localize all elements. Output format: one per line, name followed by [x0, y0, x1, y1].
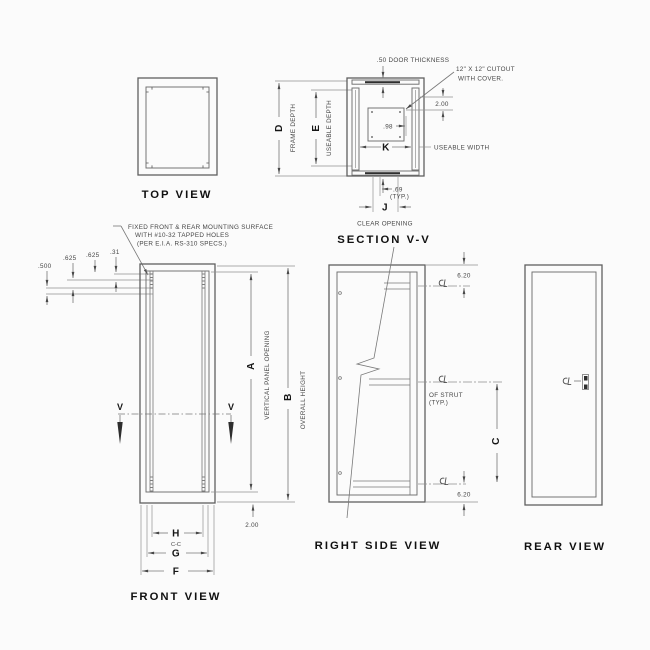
rear-outer-frame — [525, 265, 602, 505]
depth-dimensions: D FRAME DEPTH E USEABLE DEPTH — [274, 81, 352, 176]
dim-letter-j: J — [382, 203, 388, 214]
front-outer-frame — [140, 264, 215, 503]
dim-620-bottom: 6.20 — [457, 492, 471, 499]
front-note-line1: FIXED FRONT & REAR MOUNTING SURFACE — [128, 224, 273, 231]
dim-2-00-front: 2.00 — [245, 522, 259, 529]
top-view-corner-ticks — [146, 87, 209, 168]
rail-hole-ticks — [150, 274, 204, 491]
rear-view: REAR VIEW — [524, 265, 606, 553]
right-view-title: RIGHT SIDE VIEW — [315, 540, 442, 552]
front-view-title: FRONT VIEW — [131, 591, 222, 603]
offset-dim-625b: .625 — [86, 252, 100, 259]
section-arrow-right — [228, 422, 233, 444]
dim-letter-d: D — [274, 124, 285, 132]
dim-h-cc-label: C-C — [171, 542, 181, 548]
dim-letter-f: F — [173, 567, 180, 578]
dim-letter-h: H — [172, 529, 180, 540]
dim-letter-k: K — [382, 143, 390, 154]
dim-letter-b: B — [283, 393, 294, 401]
section-arrow-label-left: V — [117, 402, 123, 412]
front-note-line3: (PER E.I.A. RS-310 SPECS.) — [137, 241, 227, 248]
centerline-icon — [563, 377, 571, 384]
dim-letter-e: E — [311, 124, 322, 131]
cutout-note-line2: WITH COVER. — [458, 76, 503, 83]
dim-98: .98 — [383, 124, 393, 131]
dim-69: .69 — [393, 187, 403, 194]
door-thickness-note: .50 DOOR THICKNESS — [377, 57, 449, 64]
top-view-title: TOP VIEW — [142, 189, 213, 201]
engineering-drawing-sheet: TOP VIEW D FRAME DEPTH E USEABLE DEPTH .… — [0, 0, 650, 650]
offset-dim-31: .31 — [110, 249, 120, 256]
dim-69-typ: (TYP.) — [390, 194, 409, 201]
front-view: FIXED FRONT & REAR MOUNTING SURFACE WITH… — [38, 224, 307, 603]
drawing-canvas: TOP VIEW D FRAME DEPTH E USEABLE DEPTH .… — [0, 0, 650, 650]
break-line — [347, 247, 394, 518]
centerline-icon — [440, 477, 448, 484]
dim-letter-c: C — [491, 437, 502, 445]
section-bottom-panel — [365, 172, 400, 174]
centerline-icon — [439, 375, 447, 382]
section-view: .50 DOOR THICKNESS 12" X 12" CUTOUT WITH… — [337, 57, 515, 246]
offset-dim-500: .500 — [38, 263, 52, 270]
right-inner-frame — [337, 272, 417, 495]
rear-view-title: REAR VIEW — [524, 541, 606, 553]
dim-2-00-section: 2.00 — [435, 101, 449, 108]
dim-620-top: 6.20 — [457, 273, 471, 280]
clear-opening-label: CLEAR OPENING — [357, 221, 413, 228]
of-strut-label: OF STRUT — [429, 392, 463, 399]
offset-dim-625a: .625 — [63, 255, 77, 262]
dim-letter-g: G — [172, 549, 180, 560]
front-note-line2: WITH #10-32 TAPPED HOLES — [135, 232, 229, 239]
useable-width-label: USEABLE WIDTH — [434, 145, 489, 152]
vertical-panel-opening-label: VERTICAL PANEL OPENING — [264, 330, 271, 420]
of-strut-typ: (TYP.) — [429, 400, 448, 407]
section-arrow-left — [117, 422, 122, 444]
frame-depth-label: FRAME DEPTH — [290, 104, 297, 153]
right-outer-frame — [329, 265, 425, 502]
front-panel-opening — [146, 271, 209, 492]
overall-height-label: OVERALL HEIGHT — [300, 371, 307, 430]
section-door-panel — [365, 81, 400, 83]
top-view-inner-frame — [146, 87, 209, 168]
useable-depth-label: USEABLE DEPTH — [326, 100, 333, 156]
right-side-view: OF STRUT (TYP.) 6.20 6.20 C RIGHT SIDE V… — [315, 247, 503, 552]
top-view-outer-frame — [138, 78, 217, 175]
centerline-icon — [439, 279, 447, 286]
cutout-note-line1: 12" X 12" CUTOUT — [456, 66, 515, 73]
top-view: TOP VIEW — [138, 78, 217, 201]
section-arrow-label-right: V — [228, 402, 234, 412]
section-view-title: SECTION V-V — [337, 234, 431, 246]
dim-letter-a: A — [246, 362, 257, 370]
